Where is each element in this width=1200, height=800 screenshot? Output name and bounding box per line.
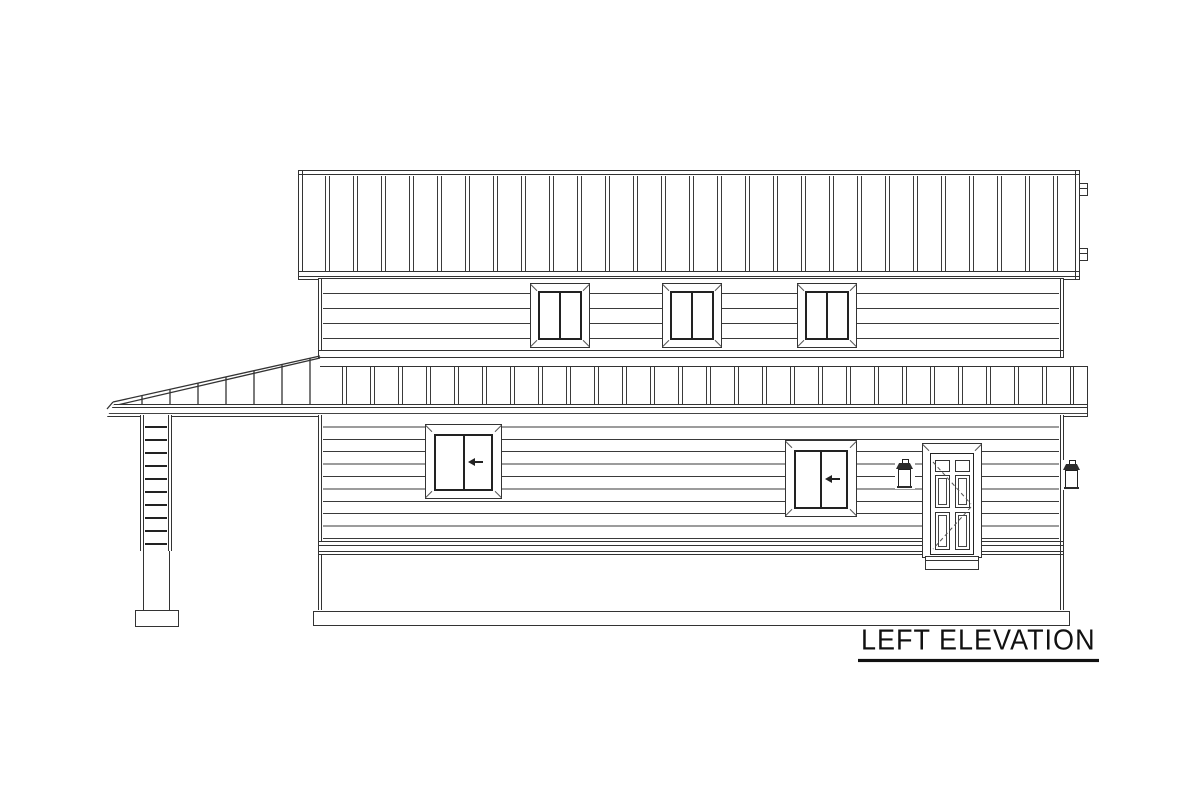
mid-roof-band (320, 366, 1088, 405)
upper-window-2 (662, 283, 722, 348)
upper-window-3 (797, 283, 857, 348)
porch-post-wrap-boards (145, 415, 167, 549)
door-step (925, 556, 979, 570)
upper-roof-standing-seams (303, 176, 1075, 271)
window-mullion (826, 293, 828, 338)
lower-window-1 (425, 424, 502, 499)
window-mullion (691, 293, 693, 338)
gutter-bracket-icon (1079, 248, 1088, 261)
window-frame (434, 434, 493, 491)
window-frame (805, 291, 849, 340)
entry-door (922, 443, 982, 558)
upper-roof-band (298, 170, 1080, 280)
mid-roof-standing-seams (320, 367, 1072, 405)
upper-window-1 (530, 283, 590, 348)
door-slab (930, 453, 974, 555)
gutter-bracket-icon (1079, 183, 1088, 196)
drawing-title: LEFT ELEVATION (858, 624, 1099, 662)
window-mullion (559, 293, 561, 338)
porch-post-lower (143, 551, 170, 610)
mid-roof-end-cap (1073, 367, 1074, 405)
wall-lantern-icon (895, 459, 915, 489)
wall-lantern-icon (1062, 460, 1082, 490)
upper-roof-edge-line (299, 174, 1079, 175)
porch-post-upper (140, 415, 172, 551)
window-mullion (820, 452, 822, 507)
slider-direction-arrow-icon (470, 461, 483, 463)
porch-post-footing (135, 610, 179, 627)
window-mullion (463, 436, 465, 489)
window-frame (538, 291, 582, 340)
door-swing-dashed-lines (931, 454, 973, 554)
slider-direction-arrow-icon (827, 478, 840, 480)
lower-window-2 (785, 440, 857, 517)
window-frame (670, 291, 714, 340)
elevation-drawing: LEFT ELEVATION (0, 0, 1200, 800)
second-story-bottom-trim (319, 350, 1063, 357)
